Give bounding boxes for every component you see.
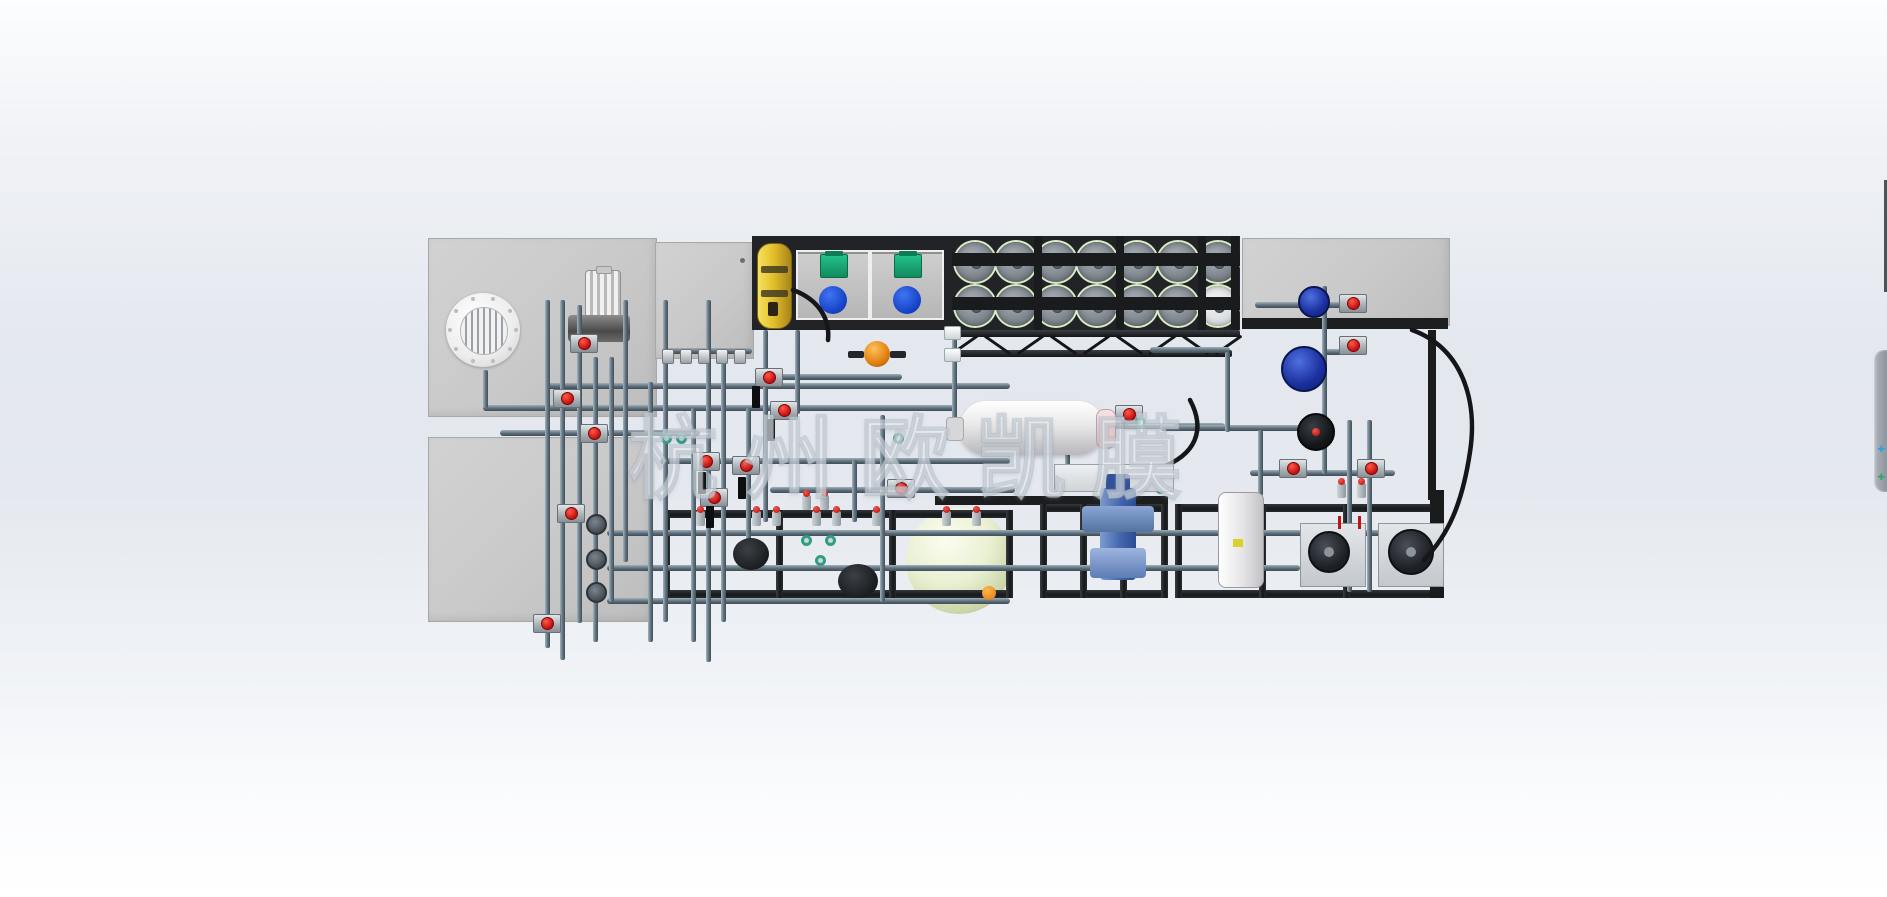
mini-valve <box>872 511 881 526</box>
manway-bolt <box>514 328 518 332</box>
mini-valve <box>696 511 705 526</box>
valve-red <box>1339 294 1367 313</box>
rack-beam <box>952 253 1240 266</box>
orange-fitting <box>982 586 996 600</box>
cabinet-fitting <box>734 349 746 364</box>
high-pressure-pump <box>1076 468 1160 588</box>
circulation-pump <box>733 538 769 570</box>
diaphragm-fitting <box>815 555 826 566</box>
mini-valve <box>972 511 981 526</box>
inline-blue-pump <box>1298 286 1330 318</box>
mini-valve <box>832 511 841 526</box>
red-mark <box>1358 516 1361 529</box>
circulation-pump <box>838 564 878 598</box>
transfer-pump <box>1388 529 1434 575</box>
yellow-cartridge-filter <box>757 243 792 329</box>
pipe <box>483 370 488 408</box>
pipe <box>880 415 885 602</box>
tank-lid <box>893 286 921 314</box>
pipe-flange <box>586 582 607 603</box>
cabinet-fitting <box>698 349 710 364</box>
mini-valve <box>1357 483 1366 498</box>
pipe <box>1225 352 1230 432</box>
valve-bracket <box>752 386 760 408</box>
valve-red <box>580 424 608 443</box>
diaphragm-fitting <box>661 433 672 444</box>
tank-lid <box>819 286 847 314</box>
diaphragm-fitting <box>1135 417 1146 428</box>
vessel-end-cap <box>1096 409 1116 449</box>
rack-strut <box>1034 236 1042 330</box>
skid-frame-right-top <box>1175 504 1437 512</box>
pipe <box>545 300 550 648</box>
manway-grid <box>460 307 508 355</box>
pipe-flange <box>586 549 607 570</box>
dosing-module <box>796 250 870 320</box>
skid-frame-right-post <box>1175 504 1182 598</box>
white-connector <box>944 348 961 362</box>
skid-frame-mid-post <box>1040 504 1047 598</box>
rack-strut <box>1198 236 1206 330</box>
pipe <box>1150 347 1230 353</box>
valve-red <box>692 452 720 471</box>
slideout-panel-tab[interactable]: ✚✚ <box>1874 350 1887 492</box>
transfer-pump <box>1308 531 1350 573</box>
valve-red <box>570 334 598 353</box>
valve-red <box>1357 459 1385 478</box>
rack-strut <box>1116 236 1124 330</box>
mini-valve <box>812 511 821 526</box>
valve-red <box>770 401 798 420</box>
valve-red <box>533 614 561 633</box>
pipe <box>762 374 902 380</box>
vertical-filter-vessel <box>1218 492 1264 588</box>
panel-bottom-strip <box>1242 318 1448 329</box>
diaphragm-fitting <box>825 535 836 546</box>
dosing-pump-icon <box>894 254 922 278</box>
inline-blue-pump <box>1281 346 1327 392</box>
manway-bolt <box>508 309 512 313</box>
mini-valve <box>820 495 829 510</box>
valve-bracket <box>767 419 775 441</box>
pipe <box>852 460 857 522</box>
pipe <box>609 357 614 602</box>
expand-blue-icon[interactable]: ✚ <box>1877 446 1885 455</box>
skid-frame-left-post <box>889 510 896 598</box>
valve-red <box>755 368 783 387</box>
manway-bolt <box>471 297 475 301</box>
valve-red <box>1279 459 1307 478</box>
valve-red <box>557 504 585 523</box>
mini-valve <box>802 495 811 510</box>
pipe <box>1367 420 1372 592</box>
orange-ball-valve <box>864 341 890 367</box>
cabinet-indicator <box>740 258 745 263</box>
skid-frame-mid-bottom <box>1040 590 1168 598</box>
mini-valve <box>942 511 951 526</box>
skid-frame-mid-post <box>1161 504 1168 598</box>
hose-rail <box>952 330 1240 337</box>
valve-red <box>1339 336 1367 355</box>
manway-bolt <box>454 309 458 313</box>
valve-bracket <box>698 472 706 494</box>
dosing-pump-icon <box>820 254 848 278</box>
diaphragm-fitting <box>801 535 812 546</box>
rack-beam <box>952 297 1240 310</box>
cad-viewport[interactable]: 杭州欧凯膜 ✚✚ <box>0 0 1887 897</box>
equipment-model <box>0 0 1887 897</box>
vessel-inlet-hub <box>946 417 964 441</box>
membrane-housing <box>960 401 1104 455</box>
skid-frame-left-bottom <box>663 590 1013 598</box>
skid-frame-left-post <box>1006 510 1013 598</box>
pipe-flange <box>586 514 607 535</box>
pipe <box>1160 425 1300 431</box>
mini-valve <box>752 511 761 526</box>
valve-red <box>732 456 760 475</box>
valve-red <box>887 479 915 498</box>
pipe <box>560 300 565 660</box>
expand-green-icon[interactable]: ✚ <box>1877 474 1885 483</box>
red-mark <box>1338 516 1341 529</box>
tank-manway <box>446 293 520 367</box>
agitator-motor <box>585 270 621 317</box>
valve-bracket <box>738 477 746 499</box>
diaphragm-fitting <box>893 433 904 444</box>
valve-red <box>553 389 581 408</box>
manway-bolt <box>491 297 495 301</box>
skid-frame-right-bottom <box>1175 590 1437 598</box>
pipe <box>952 332 957 424</box>
mini-valve <box>772 511 781 526</box>
pipe <box>1258 430 1263 496</box>
valve-bracket <box>706 506 714 528</box>
cabinet-fitting <box>662 349 674 364</box>
pipe <box>648 382 653 642</box>
pipe <box>691 408 696 642</box>
dosing-metering-pump <box>1297 413 1335 451</box>
dosing-module <box>870 250 944 320</box>
rack-strut <box>1231 236 1239 330</box>
diaphragm-fitting <box>676 433 687 444</box>
white-connector <box>944 326 961 340</box>
cabinet-fitting <box>680 349 692 364</box>
manway-bolt <box>448 328 452 332</box>
pipe <box>623 300 628 562</box>
cabinet-fitting <box>716 349 728 364</box>
mini-valve <box>1337 483 1346 498</box>
frame-member <box>1428 330 1436 500</box>
